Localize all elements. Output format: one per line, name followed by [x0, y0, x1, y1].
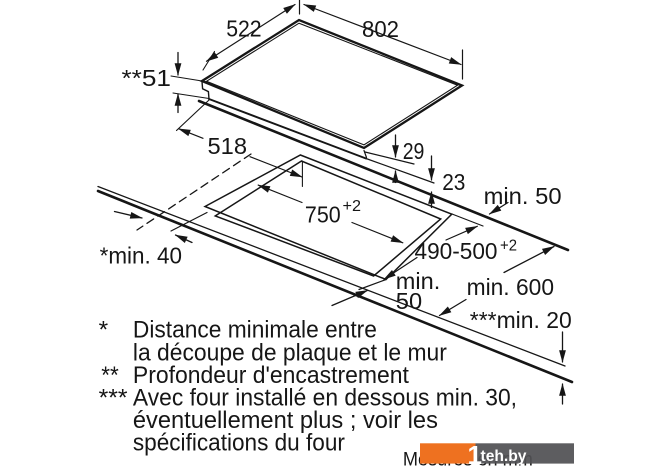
svg-text:spécifications du four: spécifications du four	[133, 430, 345, 457]
svg-text:+2: +2	[343, 198, 362, 215]
svg-text:*: *	[99, 317, 109, 344]
svg-text:***min. 20: ***min. 20	[470, 307, 572, 333]
svg-text:522: 522	[226, 16, 261, 42]
svg-text:teh.by: teh.by	[481, 448, 527, 465]
svg-text:+2: +2	[500, 238, 517, 255]
svg-text:802: 802	[362, 16, 399, 42]
svg-text:29: 29	[403, 138, 425, 164]
svg-text:**51: **51	[122, 65, 172, 91]
svg-text:min. 50: min. 50	[484, 183, 562, 209]
svg-text:23: 23	[442, 169, 465, 195]
svg-text:***: ***	[99, 385, 128, 412]
svg-text:750: 750	[305, 201, 341, 227]
svg-text:50: 50	[396, 288, 422, 314]
svg-text:518: 518	[208, 133, 248, 159]
svg-text:*min. 40: *min. 40	[100, 243, 182, 269]
svg-text:min. 600: min. 600	[467, 274, 554, 300]
svg-text:490-500: 490-500	[415, 238, 498, 264]
